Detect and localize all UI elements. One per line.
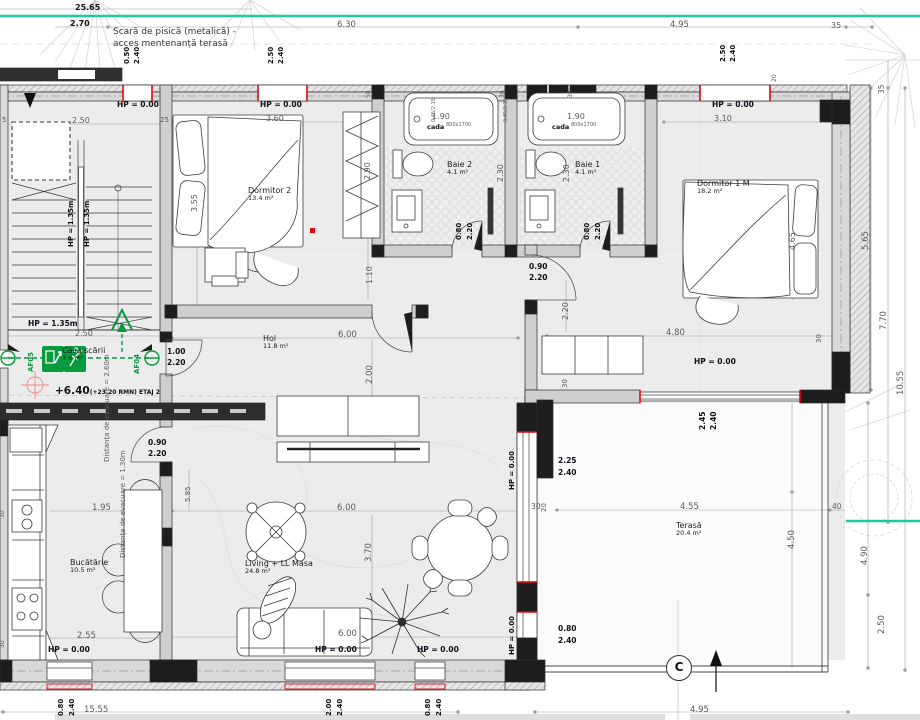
- desk-dormitor-2: [205, 248, 248, 286]
- hol-cabinet: [277, 396, 429, 462]
- wardrobe-dormitor-1: [542, 336, 643, 374]
- radiator-baie-2: [488, 188, 493, 234]
- toilet-baie-2: [393, 150, 433, 178]
- floor-plan: 25.652.706.304.95350.502.402.502.402.502…: [0, 0, 920, 720]
- stair-skylight: [12, 122, 70, 180]
- adjacent-sheet-edge: [55, 714, 665, 720]
- wardrobe-dormitor-2: [343, 112, 380, 238]
- bathtub-baie-1: [528, 93, 625, 145]
- adjacent-sheet-edge: [690, 714, 920, 720]
- sink-baie-2: [392, 190, 422, 232]
- bathtub-baie-2: [404, 93, 498, 145]
- exit-sign-icons: [42, 346, 86, 372]
- plan-drawing: [0, 0, 920, 720]
- coffee-table: [246, 502, 306, 562]
- radiator-baie-1: [618, 188, 623, 234]
- sink-baie-1: [525, 190, 555, 232]
- red-reference-dot: [310, 228, 315, 233]
- cooktop: [12, 588, 42, 630]
- toilet-baie-1: [526, 150, 566, 178]
